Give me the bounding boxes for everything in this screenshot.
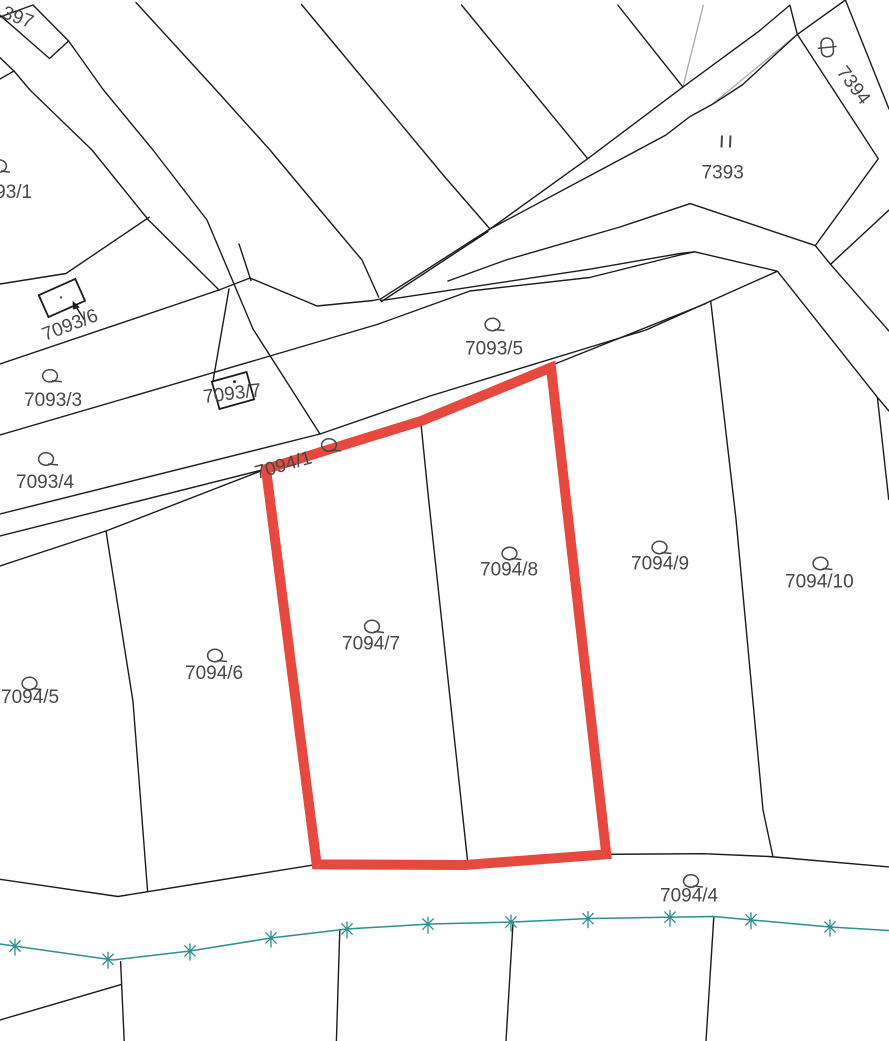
svg-text:7094/7: 7094/7 — [342, 634, 400, 655]
svg-text:7093/5: 7093/5 — [465, 339, 523, 360]
svg-text:7094/9: 7094/9 — [631, 554, 689, 575]
svg-text:7094/8: 7094/8 — [480, 560, 538, 581]
svg-text:7094/10: 7094/10 — [785, 572, 854, 593]
svg-text:7093/3: 7093/3 — [24, 390, 82, 411]
svg-text:7393: 7393 — [702, 163, 744, 184]
svg-text:7093/4: 7093/4 — [16, 472, 75, 493]
svg-text:7093/1: 7093/1 — [0, 182, 32, 203]
svg-text:7094/5: 7094/5 — [1, 687, 59, 708]
svg-text:7094/6: 7094/6 — [185, 663, 243, 684]
svg-text:7094/4: 7094/4 — [660, 886, 719, 907]
